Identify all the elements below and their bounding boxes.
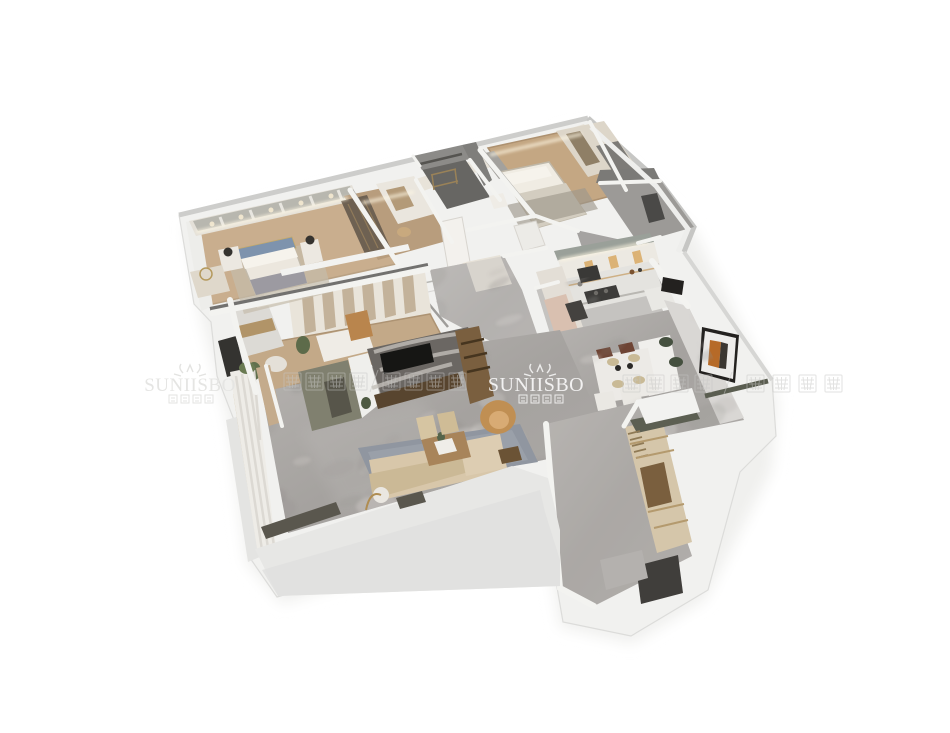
svg-text:SUNIISBO: SUNIISBO xyxy=(144,375,236,396)
svg-text:SUNIISBO: SUNIISBO xyxy=(488,374,584,396)
